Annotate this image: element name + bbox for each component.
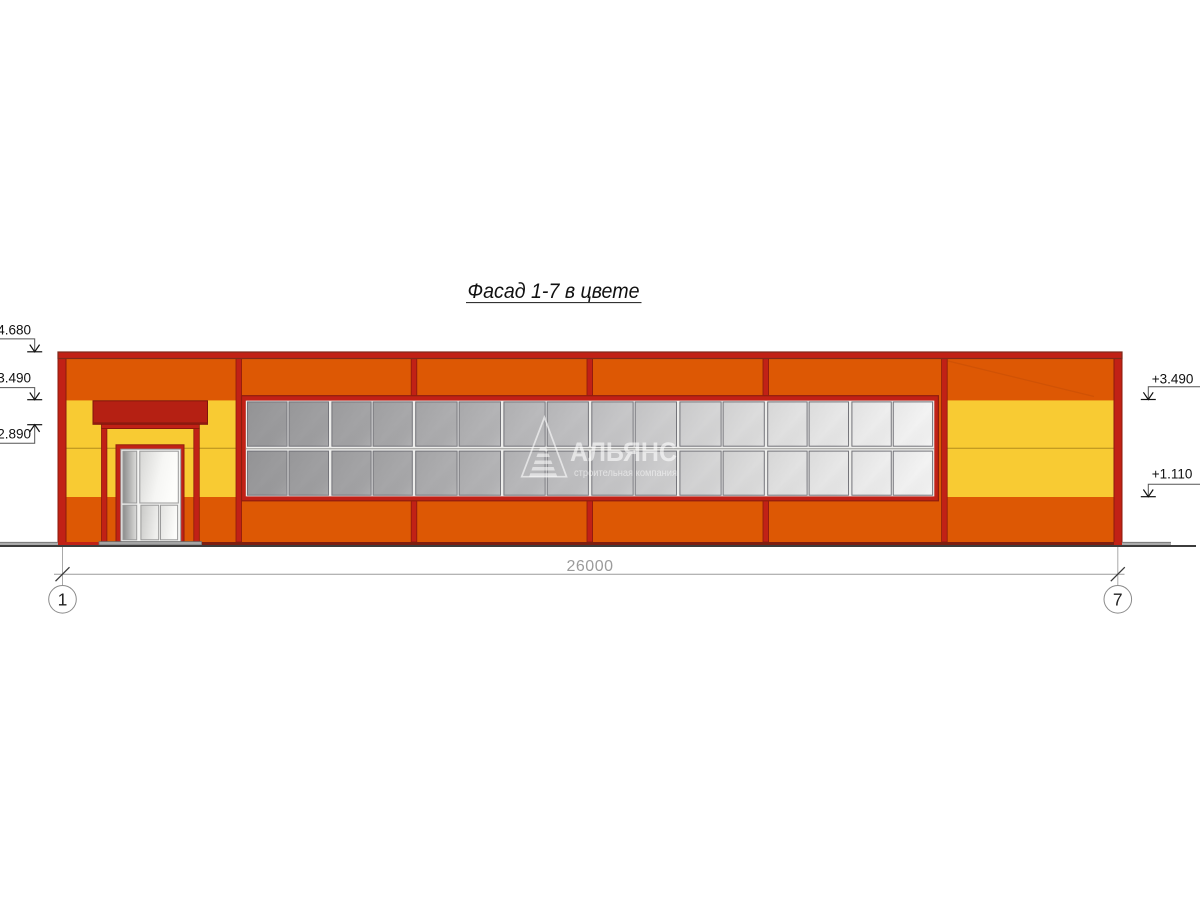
svg-text:+3.490: +3.490 <box>1152 371 1194 386</box>
svg-text:+3.490: +3.490 <box>0 371 31 386</box>
svg-text:+2.890: +2.890 <box>0 426 31 441</box>
svg-text:АЛЬЯНС: АЛЬЯНС <box>570 437 677 467</box>
svg-text:Фасад 1-7 в цвете: Фасад 1-7 в цвете <box>468 279 640 303</box>
svg-text:1: 1 <box>58 590 68 610</box>
svg-text:26000: 26000 <box>567 558 614 575</box>
svg-text:7: 7 <box>1113 590 1123 610</box>
svg-text:+4.680: +4.680 <box>0 323 31 338</box>
svg-text:+1.110: +1.110 <box>1152 466 1193 481</box>
svg-text:строительная компания: строительная компания <box>574 468 677 479</box>
